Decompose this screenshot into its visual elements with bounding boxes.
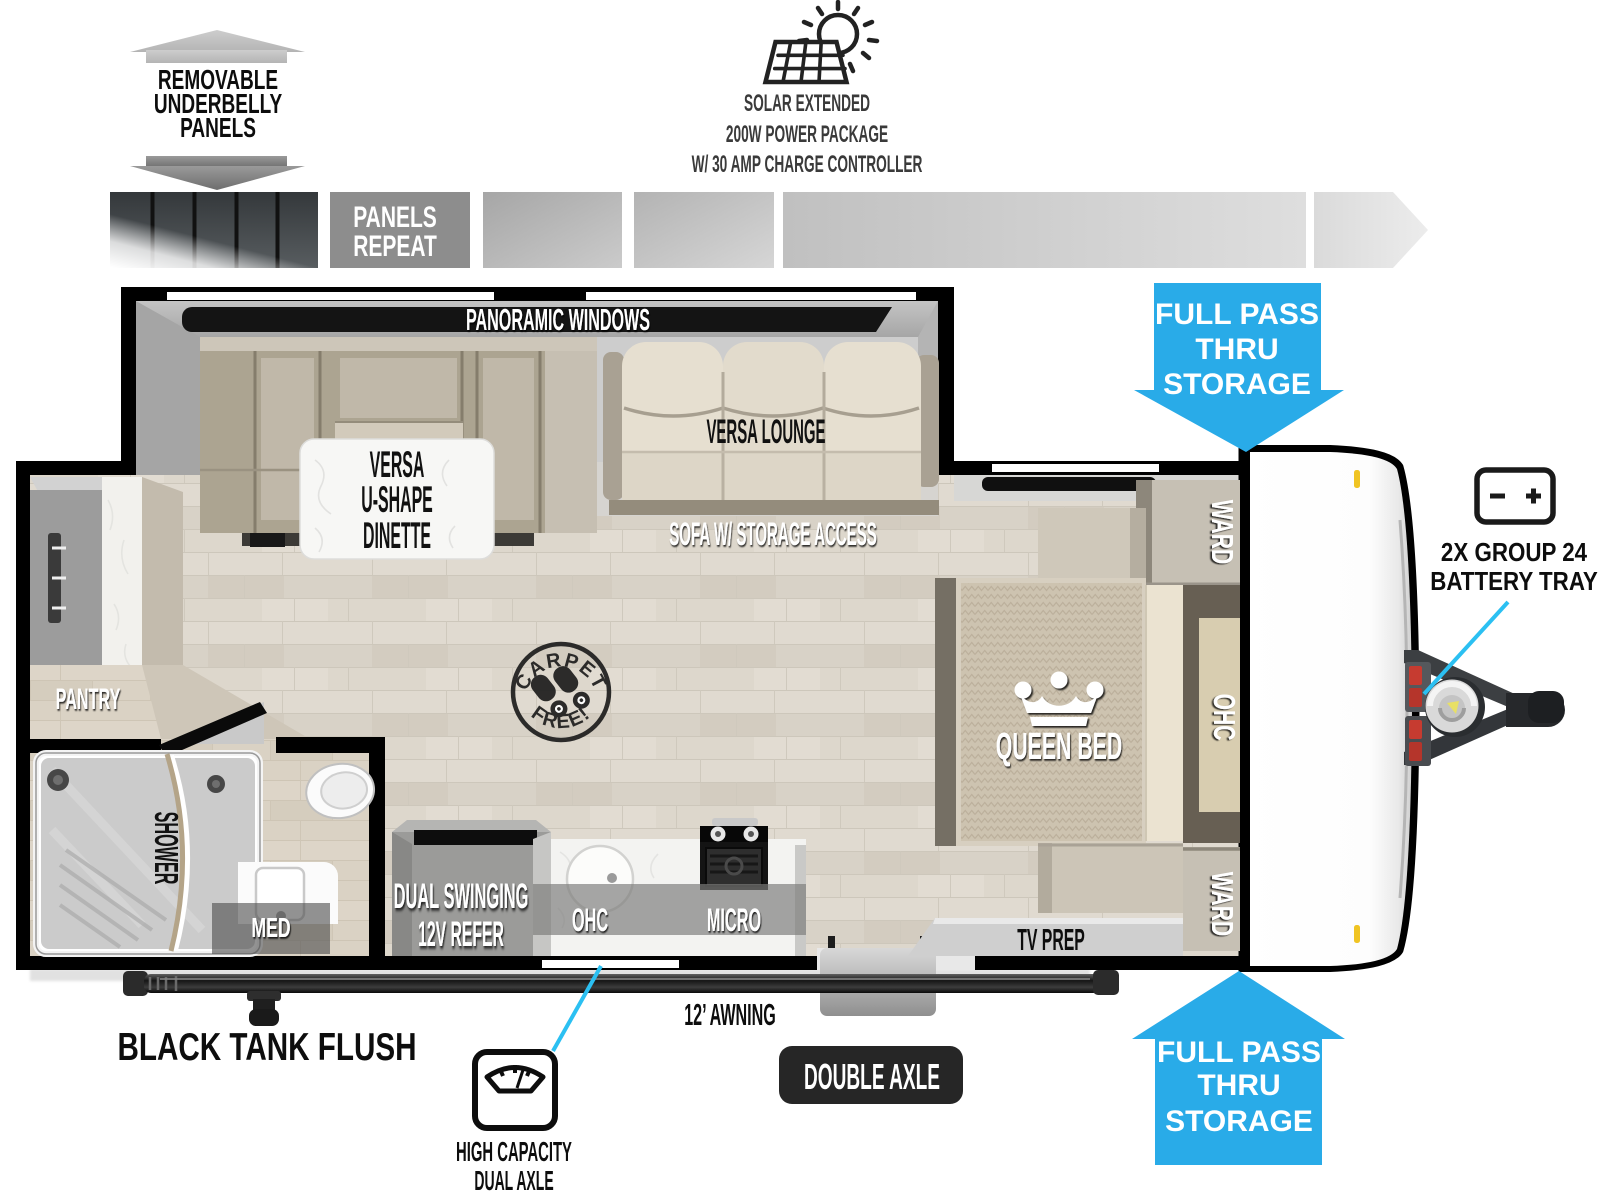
svg-text:MICRO: MICRO	[707, 903, 761, 938]
svg-text:DUAL AXLE: DUAL AXLE	[474, 1165, 553, 1194]
svg-text:SHOWER: SHOWER	[147, 812, 185, 885]
svg-text:WARD: WARD	[1205, 500, 1240, 564]
svg-text:2X GROUP 24: 2X GROUP 24	[1441, 538, 1588, 567]
svg-text:SOLAR EXTENDED: SOLAR EXTENDED	[744, 90, 870, 117]
svg-text:QUEEN BED: QUEEN BED	[996, 724, 1122, 767]
svg-text:PANTRY: PANTRY	[56, 683, 121, 717]
svg-text:FULL PASS: FULL PASS	[1157, 1036, 1321, 1069]
svg-text:DUAL SWINGING: DUAL SWINGING	[394, 876, 529, 916]
svg-text:WARD: WARD	[1205, 872, 1240, 936]
svg-text:PANELS: PANELS	[353, 202, 437, 234]
svg-text:12’ AWNING: 12’ AWNING	[684, 999, 776, 1033]
svg-text:BATTERY TRAY: BATTERY TRAY	[1430, 567, 1598, 596]
svg-text:OHC: OHC	[1207, 694, 1242, 741]
svg-text:STORAGE: STORAGE	[1163, 368, 1311, 401]
svg-text:12V REFER: 12V REFER	[418, 914, 504, 954]
svg-text:THRU: THRU	[1195, 333, 1278, 366]
svg-text:THRU: THRU	[1197, 1069, 1280, 1102]
svg-text:DOUBLE AXLE: DOUBLE AXLE	[804, 1058, 940, 1098]
svg-text:OHC: OHC	[572, 903, 608, 938]
svg-text:PANORAMIC WINDOWS: PANORAMIC WINDOWS	[466, 304, 650, 338]
svg-text:PANELS: PANELS	[180, 112, 256, 144]
svg-text:BLACK TANK FLUSH: BLACK TANK FLUSH	[117, 1026, 416, 1069]
svg-text:MED: MED	[251, 912, 290, 943]
svg-text:DINETTE: DINETTE	[363, 516, 431, 558]
svg-text:REPEAT: REPEAT	[353, 231, 437, 263]
svg-text:HIGH CAPACITY: HIGH CAPACITY	[456, 1136, 572, 1167]
svg-text:W/ 30 AMP CHARGE CONTROLLER: W/ 30 AMP CHARGE CONTROLLER	[692, 151, 923, 178]
svg-text:STORAGE: STORAGE	[1165, 1105, 1313, 1138]
svg-text:TV PREP: TV PREP	[1017, 924, 1085, 958]
svg-text:SOFA W/ STORAGE ACCESS: SOFA W/ STORAGE ACCESS	[669, 517, 877, 553]
svg-text:200W POWER PACKAGE: 200W POWER PACKAGE	[726, 121, 888, 148]
svg-text:VERSA LOUNGE: VERSA LOUNGE	[706, 412, 825, 451]
svg-text:FULL PASS: FULL PASS	[1155, 298, 1319, 331]
